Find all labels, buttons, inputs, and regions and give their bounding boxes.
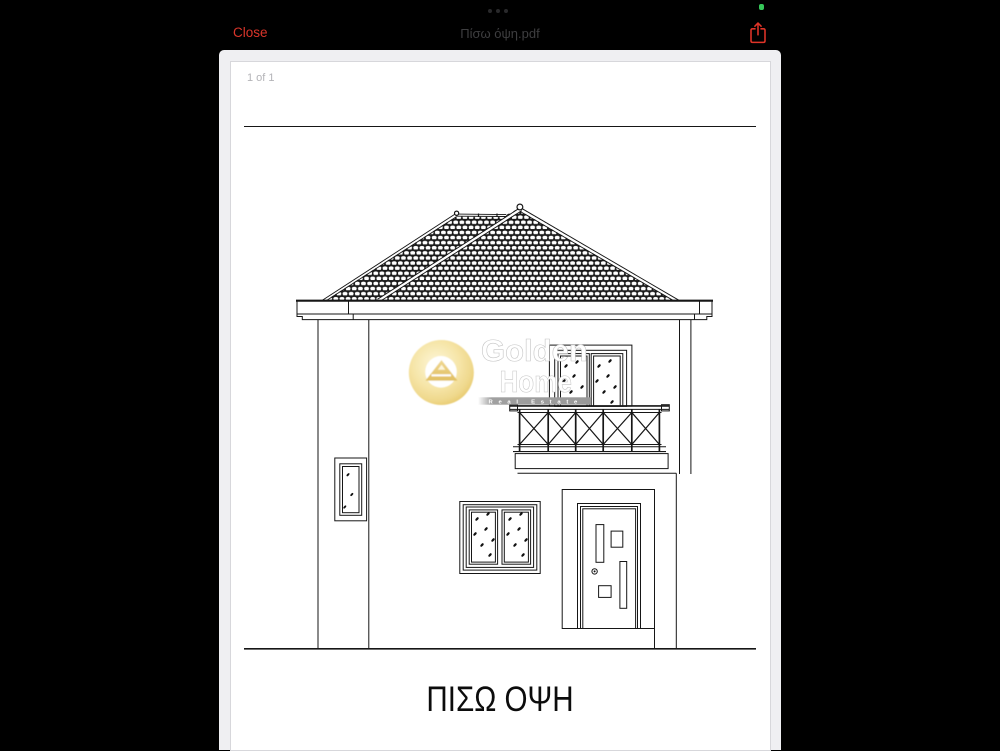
svg-text:Real Estate: Real Estate [489, 399, 583, 405]
svg-text:Golden: Golden [481, 333, 588, 368]
svg-text:Home: Home [500, 365, 572, 400]
